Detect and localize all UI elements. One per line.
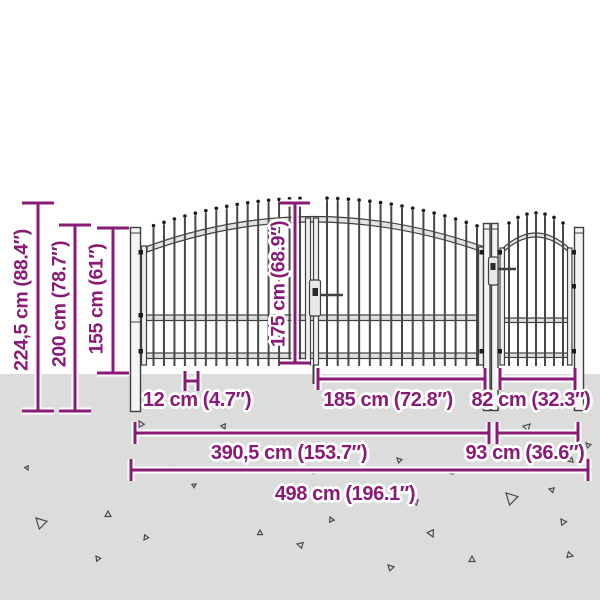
main-gate-left-stile	[142, 246, 147, 365]
hinges	[139, 250, 577, 354]
label-height-total: 224,5 cm (88.4″)	[12, 229, 32, 371]
label-height-155: 155 cm (61″)	[87, 244, 107, 355]
label-total-width: 498 cm (196.1″)	[275, 484, 415, 504]
label-double-gate-width: 390,5 cm (153.7″)	[211, 443, 367, 463]
label-height-200: 200 cm (78.7″)	[50, 241, 70, 367]
label-wicket-gate-width: 93 cm (36.6″)	[466, 443, 585, 463]
label-height-gate: 175 cm (68.9″)	[269, 221, 289, 347]
label-wicket-leaf-width: 82 cm (32.3″)	[472, 390, 591, 410]
label-leaf-width: 185 cm (72.8″)	[323, 390, 453, 410]
product-dimension-diagram: 224,5 cm (88.4″) 200 cm (78.7″) 155 cm (…	[0, 0, 600, 600]
wicket-left-stile	[500, 248, 505, 365]
main-gate-right-stile	[479, 247, 484, 365]
label-picket-spacing: 12 cm (4.7″)	[143, 390, 251, 410]
left-post	[131, 228, 141, 412]
wicket-right-stile	[568, 248, 573, 365]
